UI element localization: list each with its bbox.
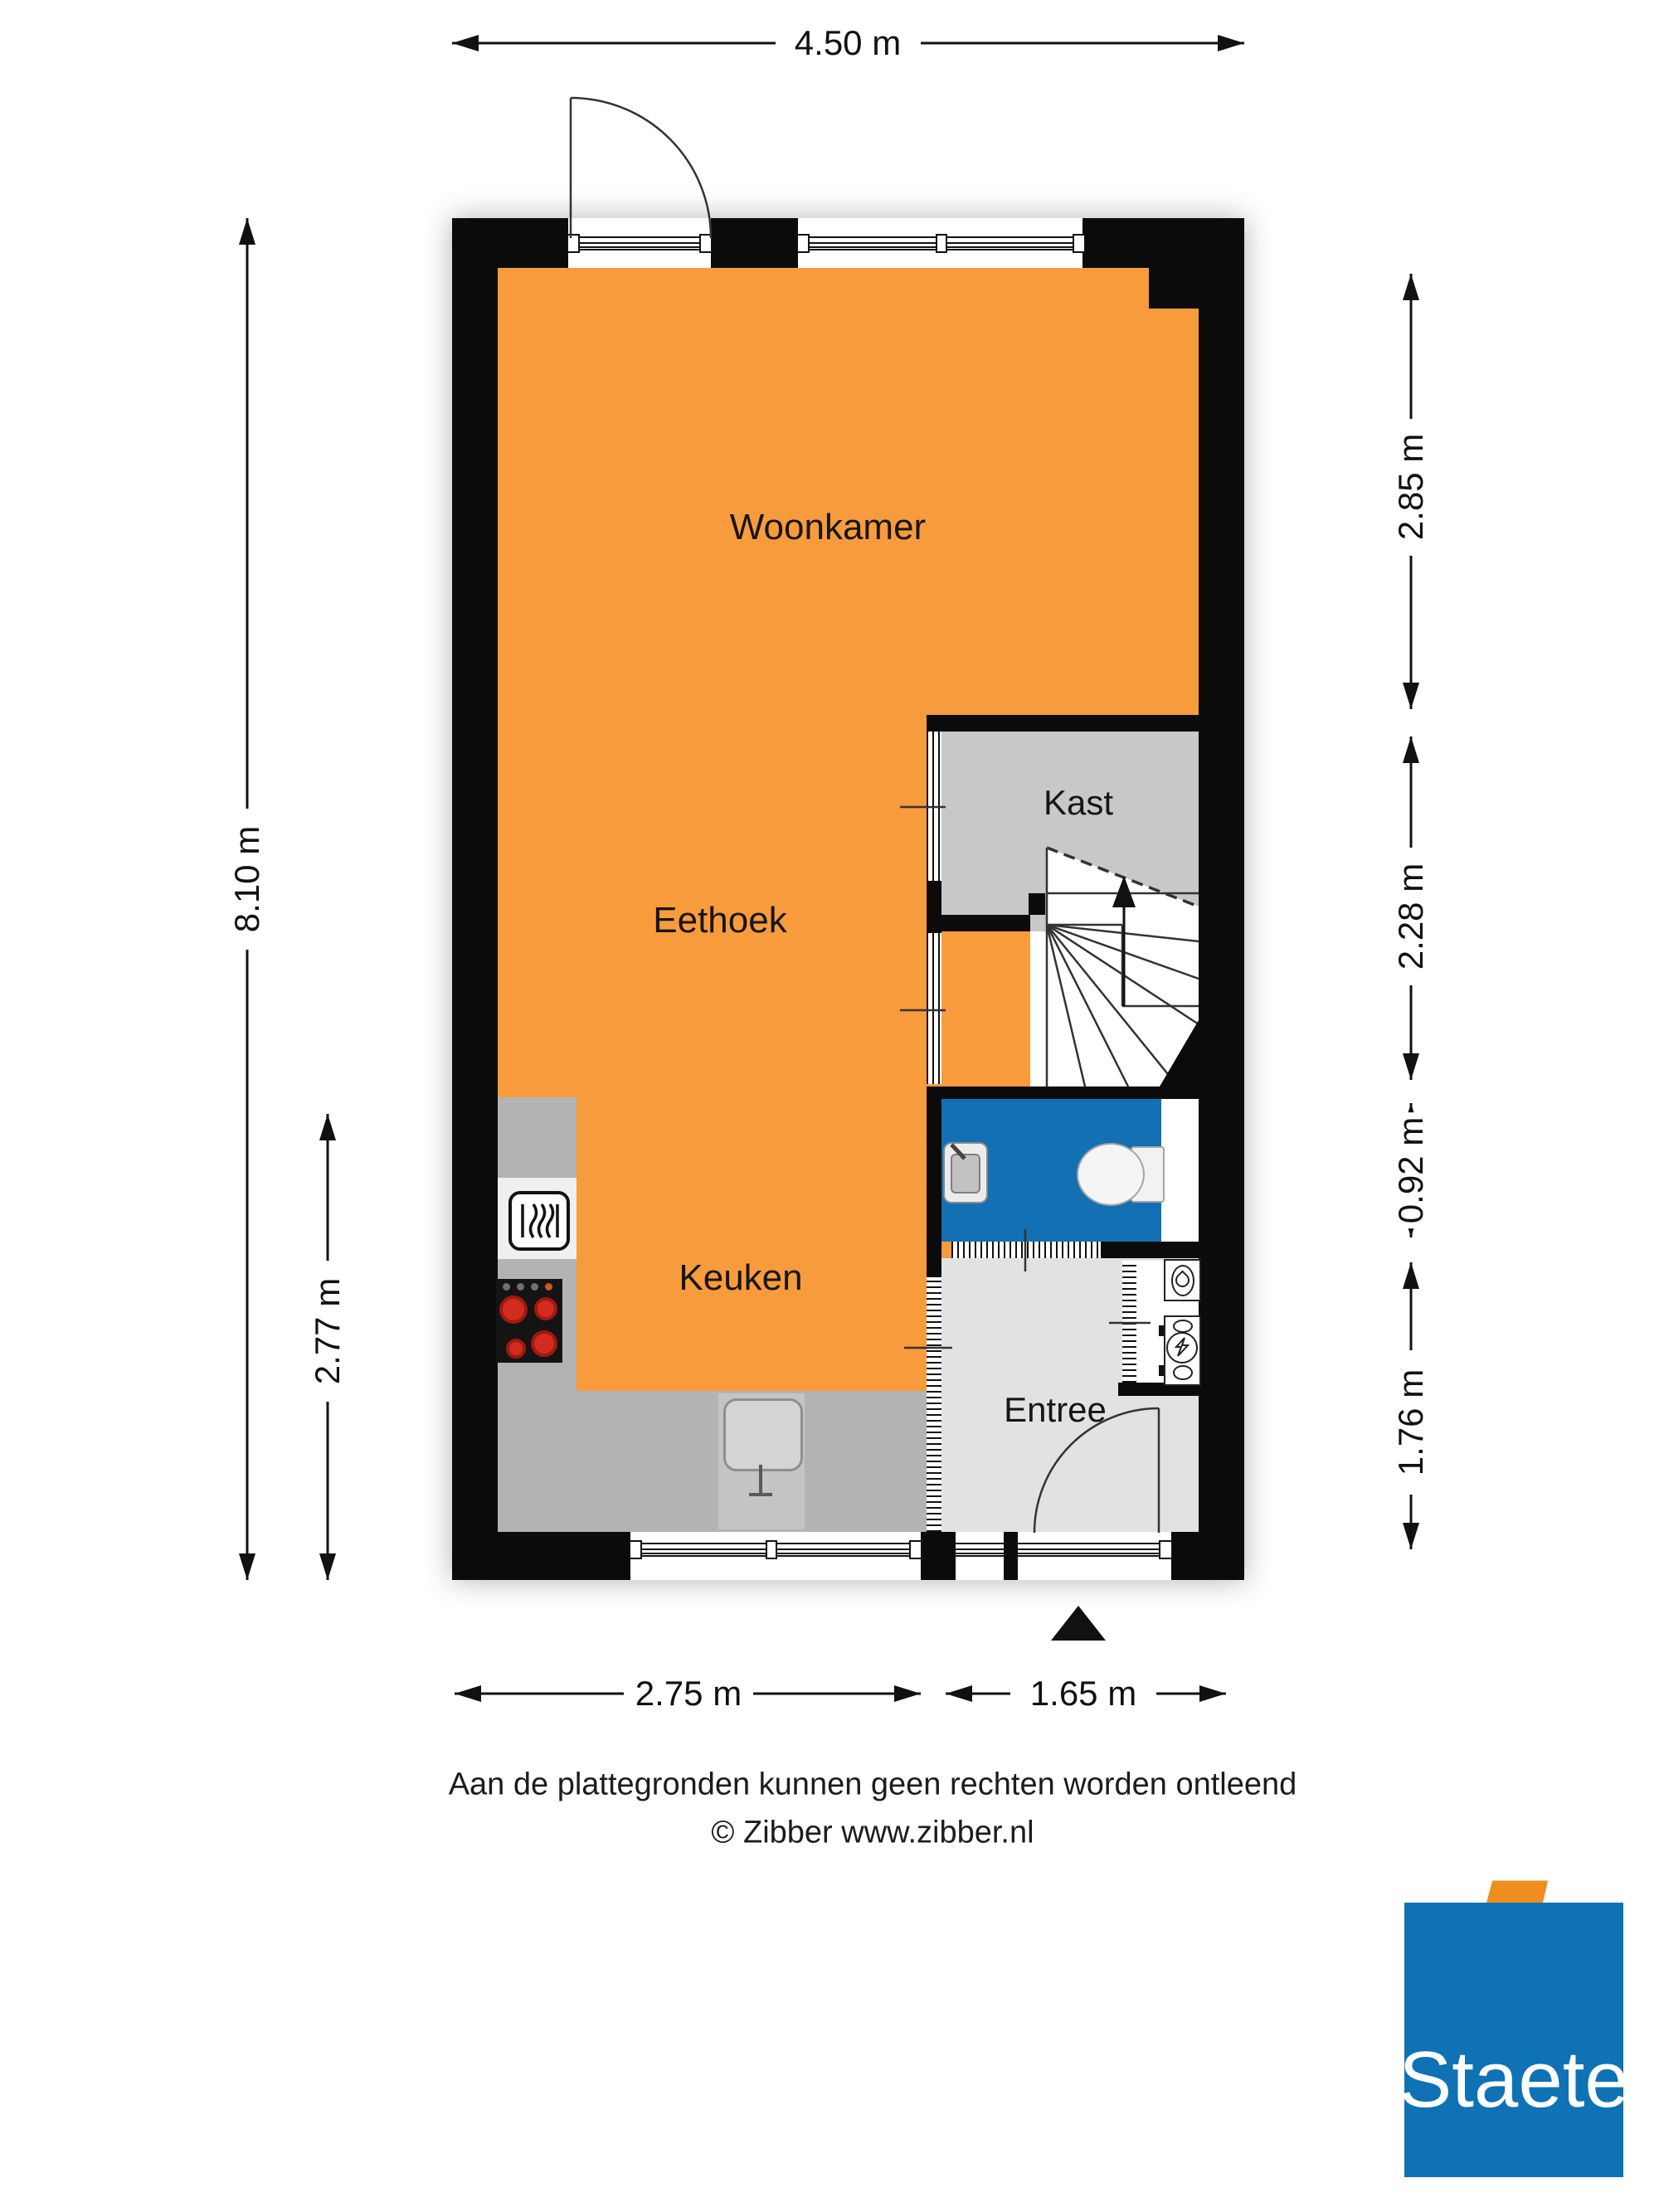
boiler-tab [1159,1365,1164,1376]
room-label-woonkamer: Woonkamer [730,507,926,548]
cooktop-icon [496,1279,562,1363]
toilet-left-wall [927,1099,941,1277]
wall-top-corner-left [452,218,558,268]
burner [499,1296,528,1324]
cooktop-knob [531,1283,538,1291]
wall-bottom-divider [1004,1532,1018,1580]
terrace-door-swing [571,98,711,238]
kast-top-wall [927,715,1244,732]
kast-bottom-wall [941,915,1030,931]
boiler-top-oval [1173,1320,1193,1333]
cooktop-knob [503,1283,510,1291]
room-label-eethoek: Eethoek [653,900,786,941]
toilet-bottom-wall [1101,1242,1199,1258]
terrace-door-threshold [568,236,711,250]
wall-top-b [711,218,798,268]
stairwell-side-strip [1030,931,1047,1087]
room-label-kast: Kast [1044,783,1113,823]
dim-right-entree: 1.76 m [1391,1364,1431,1480]
hand-basin-icon [943,1142,988,1203]
oven-icon [508,1191,570,1251]
kast-glass-strip-upper [927,732,941,881]
toilet-duct-strip [1161,1099,1199,1242]
staete-logo-text: Staete [1399,2035,1629,2126]
wall-left [452,218,498,1580]
toilet-top-wall [927,1087,1199,1099]
dim-top-width: 4.50 m [790,23,906,63]
kitchen-entree-partition [927,1277,941,1532]
kast-strip-wall-mid [927,881,941,933]
kast-glass-strip-lower [927,933,941,1084]
wall-top-corner-right [1149,218,1244,309]
dim-bottom-entree: 1.65 m [1025,1674,1141,1714]
disclaimer-line1: Aan de plattegronden kunnen geen rechten… [449,1767,1297,1803]
entrance-triangle-icon [1051,1606,1106,1641]
dim-right-toilet: 0.92 m [1391,1112,1431,1228]
top-window-cap-left [796,234,810,253]
kast-bottom-wall-stub [1029,893,1045,915]
room-label-entree: Entree [1004,1390,1107,1430]
kitchen-counter-bottom [498,1391,927,1532]
wall-bottom-a [452,1532,630,1580]
burner [506,1339,526,1359]
dim-left-kitchen: 2.77 m [308,1273,348,1389]
kitchen-window-cap-right [909,1540,922,1559]
room-label-keuken: Keuken [679,1257,802,1299]
stairwell-area [1047,848,1199,1087]
kitchen-window-mullion [766,1540,777,1559]
burner [534,1297,557,1320]
dim-right-stairs: 2.28 m [1391,858,1431,975]
boiler-bolt [1173,1337,1191,1357]
dim-bottom-kitchen: 2.75 m [630,1674,747,1714]
toilet-door-strip [951,1242,1101,1258]
wall-bottom-c [1171,1532,1244,1580]
hand-basin-bowl [951,1154,980,1194]
wall-right [1199,218,1244,1580]
wall-bottom-b [921,1532,956,1580]
cooktop-knob [517,1283,524,1291]
dim-right-living: 2.85 m [1391,429,1431,545]
top-window-mullion [936,234,947,253]
dim-left-total: 8.10 m [227,821,267,937]
kitchen-sink-icon [723,1398,803,1471]
top-window-cap-right [1073,234,1086,253]
kitchen-window-cap-left [629,1540,642,1559]
terrace-door-cap-left [567,234,580,253]
floorplan-page: Woonkamer Eethoek Keuken Kast Entree 4.5… [0,0,1659,2212]
burner [531,1330,557,1357]
fountain-basin-icon [1164,1259,1201,1301]
front-door-threshold [1018,1543,1171,1557]
entree-fixture-partition [1122,1261,1136,1383]
boiler-icon [1164,1315,1201,1386]
entree-window [956,1543,1004,1557]
cooktop-knob [545,1283,552,1291]
boiler-bottom-oval [1173,1365,1193,1380]
disclaimer-line2: © Zibber www.zibber.nl [711,1816,1034,1851]
front-door-cap [1159,1540,1173,1559]
toilet-icon-bowl [1077,1143,1145,1206]
boiler-tab [1159,1325,1164,1336]
terrace-door-cap-right [699,234,713,253]
staete-logo: Staete [1404,1903,1623,2177]
